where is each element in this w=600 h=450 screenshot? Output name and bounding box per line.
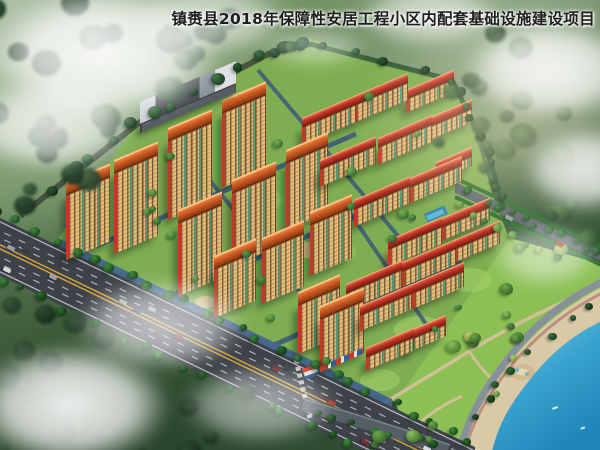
project-title: 镇赉县2018年保障性安居工程小区内配套基础设施建设项目 — [171, 7, 595, 29]
plaza-pool — [525, 372, 529, 376]
sunlight-glow — [290, 0, 600, 280]
park-lawn-patch — [394, 316, 446, 344]
playground-court — [236, 161, 268, 179]
courtyard-lawn — [180, 250, 220, 274]
courtyard-lawn — [238, 187, 282, 213]
aerial-rendering: 镇赉县2018年保障性安居工程小区内配套基础设施建设项目 — [0, 0, 600, 450]
plaza-pool — [515, 368, 519, 372]
